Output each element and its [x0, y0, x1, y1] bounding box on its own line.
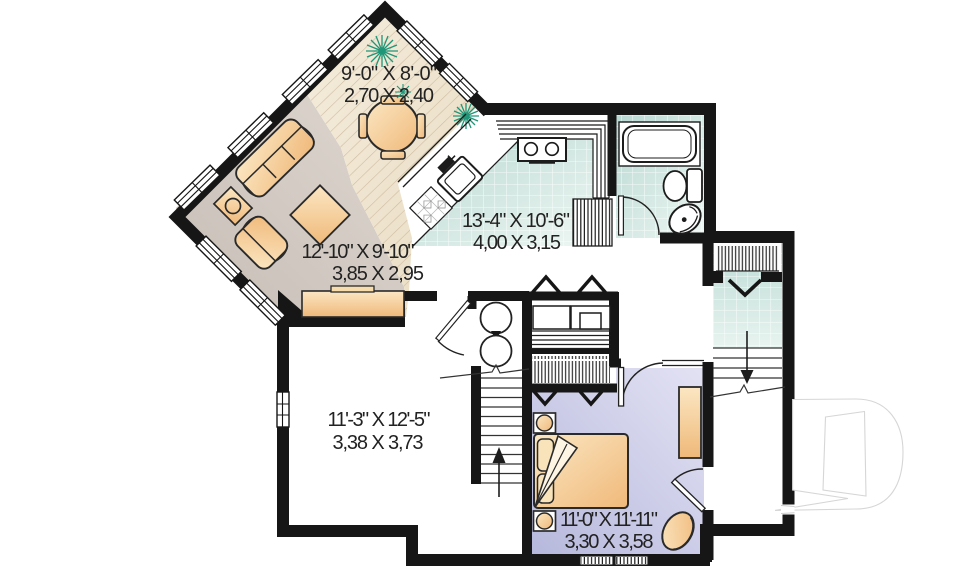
svg-text:2,70 X 2,40: 2,70 X 2,40	[344, 85, 434, 107]
svg-text:11'-3" X 12'-5": 11'-3" X 12'-5"	[328, 409, 431, 431]
svg-text:3,38 X 3,73: 3,38 X 3,73	[333, 432, 424, 454]
svg-text:12'-10" X 9'-10": 12'-10" X 9'-10"	[302, 241, 415, 263]
svg-text:9'-0" X 8'-0": 9'-0" X 8'-0"	[341, 63, 437, 85]
svg-text:3,30 X 3,58: 3,30 X 3,58	[565, 531, 654, 553]
svg-text:13'-4" X 10'-6": 13'-4" X 10'-6"	[462, 210, 570, 232]
svg-text:11'-0" X 11'-11": 11'-0" X 11'-11"	[560, 509, 658, 531]
svg-text:4,00 X 3,15: 4,00 X 3,15	[473, 232, 561, 254]
svg-text:3,85 X 2,95: 3,85 X 2,95	[332, 263, 424, 285]
